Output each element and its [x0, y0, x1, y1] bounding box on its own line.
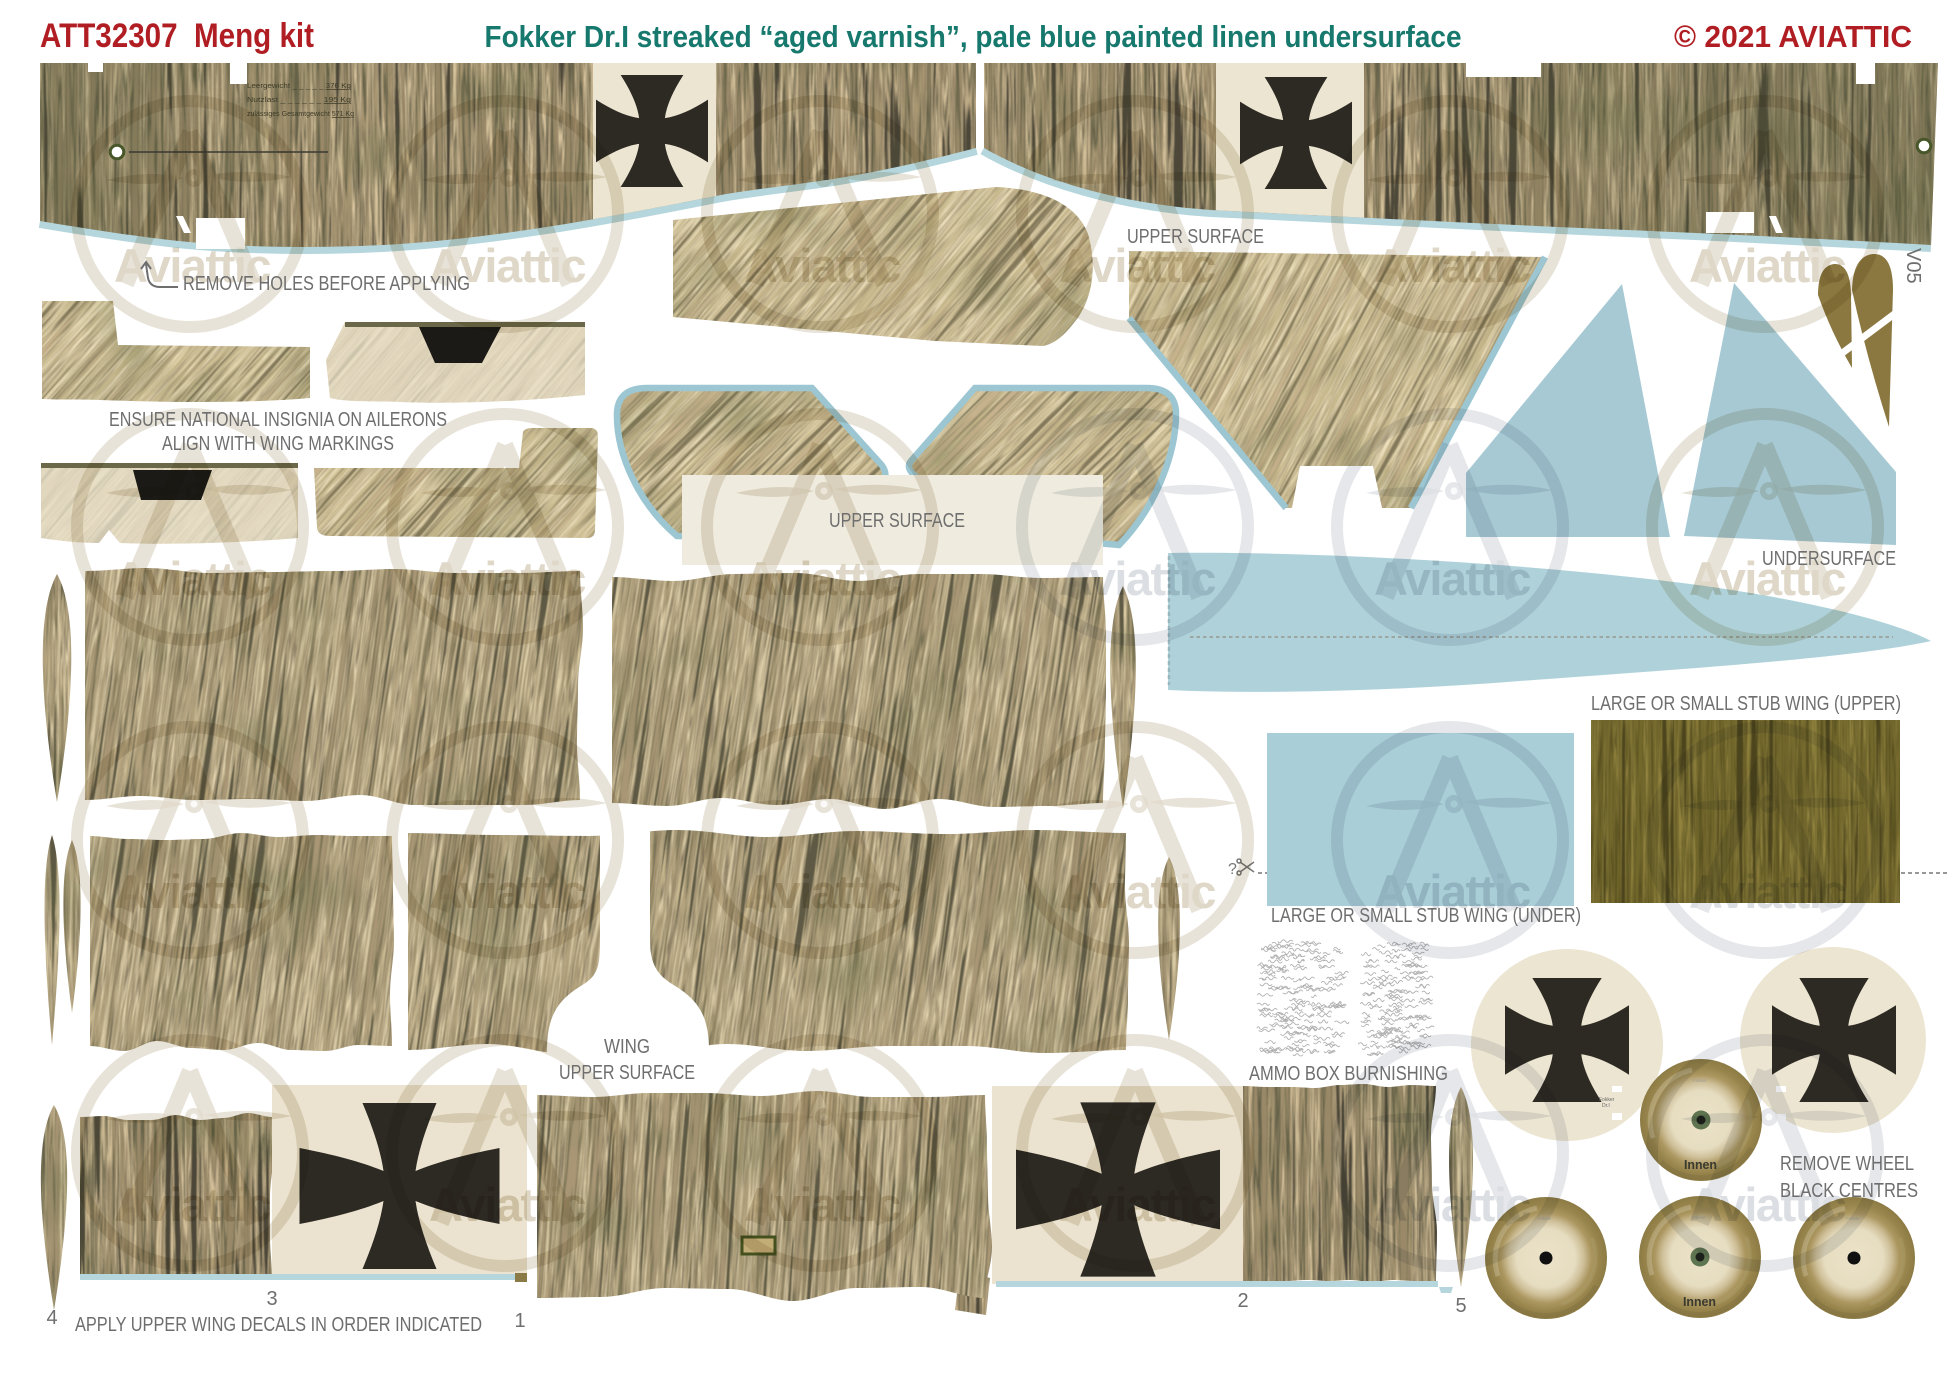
svg-text:2: 2: [1237, 1290, 1248, 1312]
svg-text:AMMO BOX BURNISHING: AMMO BOX BURNISHING: [1249, 1063, 1448, 1085]
svg-text:ALIGN WITH WING MARKINGS: ALIGN WITH WING MARKINGS: [162, 433, 394, 455]
svg-text:Nutzlast _ _ _ _ _ _ 195 Kg: Nutzlast _ _ _ _ _ _ 195 Kg: [247, 95, 351, 104]
svg-text:Fokker Dr.I streaked “aged var: Fokker Dr.I streaked “aged varnish”, pal…: [485, 19, 1462, 54]
svg-text:zulässiges Gesamtgewicht 571 K: zulässiges Gesamtgewicht 571 Kg: [247, 109, 354, 118]
svg-text:UPPER SURFACE: UPPER SURFACE: [829, 510, 965, 532]
svg-text:REMOVE WHEEL: REMOVE WHEEL: [1780, 1153, 1914, 1175]
svg-text:WING: WING: [604, 1036, 650, 1058]
svg-text:ATT32307 Meng kit: ATT32307 Meng kit: [40, 17, 314, 55]
svg-text:LARGE OR SMALL STUB WING (UPPE: LARGE OR SMALL STUB WING (UPPER): [1591, 693, 1901, 715]
svg-text:Innen: Innen: [1684, 1158, 1717, 1172]
svg-text:?: ?: [1228, 861, 1237, 878]
svg-text:3: 3: [266, 1288, 277, 1310]
svg-text:© 2021 AVIATTIC: © 2021 AVIATTIC: [1674, 19, 1912, 54]
svg-text:Fokker: Fokker: [1693, 1078, 1707, 1083]
svg-text:LARGE OR SMALL STUB WING (UNDE: LARGE OR SMALL STUB WING (UNDER): [1271, 905, 1581, 927]
svg-text:Dr.I: Dr.I: [1602, 1103, 1610, 1109]
svg-text:1: 1: [514, 1310, 525, 1332]
svg-text:Innen: Innen: [1683, 1295, 1716, 1309]
svg-text:REMOVE HOLES BEFORE APPLYING: REMOVE HOLES BEFORE APPLYING: [183, 273, 470, 295]
svg-text:4: 4: [46, 1307, 57, 1329]
svg-text:UPPER SURFACE: UPPER SURFACE: [559, 1062, 695, 1084]
svg-text:BLACK CENTRES: BLACK CENTRES: [1780, 1180, 1918, 1202]
svg-text:ENSURE NATIONAL INSIGNIA ON AI: ENSURE NATIONAL INSIGNIA ON AILERONS: [109, 409, 447, 431]
svg-text:UNDERSURFACE: UNDERSURFACE: [1762, 548, 1896, 570]
svg-text:Leergewicht _ _ _ _ _ 376 Kg: Leergewicht _ _ _ _ _ 376 Kg: [247, 81, 351, 90]
svg-text:V05: V05: [1902, 248, 1924, 284]
svg-text:5: 5: [1455, 1295, 1466, 1317]
svg-text:APPLY UPPER WING DECALS IN ORD: APPLY UPPER WING DECALS IN ORDER INDICAT…: [75, 1314, 482, 1336]
svg-text:UPPER SURFACE: UPPER SURFACE: [1127, 226, 1264, 248]
